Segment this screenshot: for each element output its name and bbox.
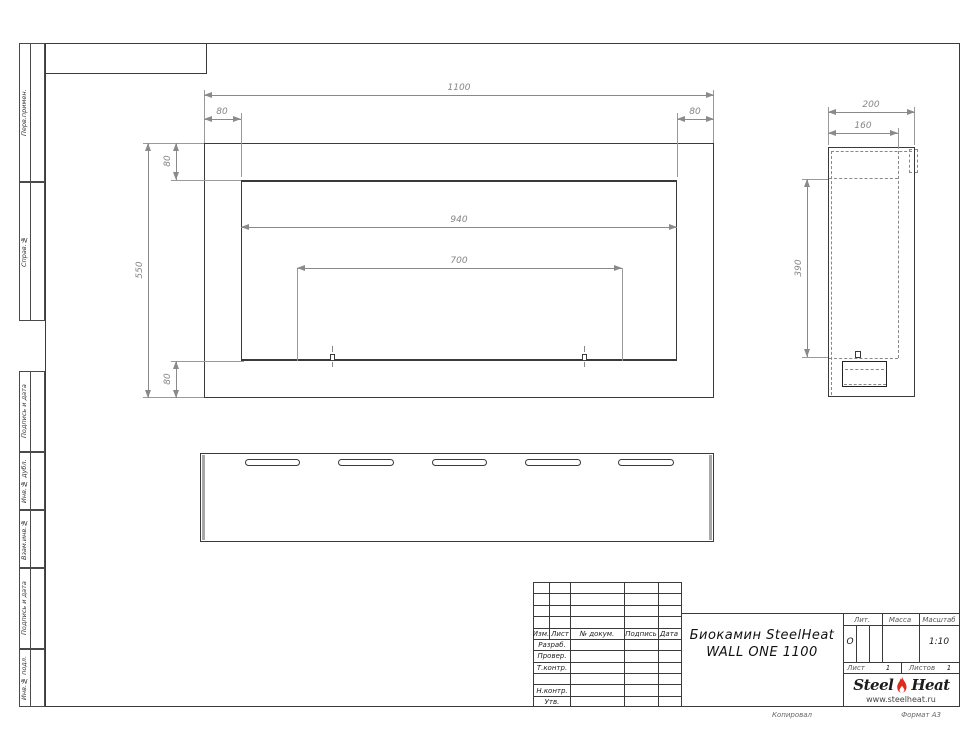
centerline bbox=[332, 346, 333, 352]
extension-line bbox=[802, 357, 828, 358]
mass-label: Масса bbox=[889, 615, 911, 625]
scale-value: 1:10 bbox=[929, 637, 949, 647]
row-prover: Провер. bbox=[537, 651, 566, 661]
grid-line bbox=[919, 613, 920, 662]
divider bbox=[30, 453, 31, 509]
divider bbox=[30, 650, 31, 706]
grid-line bbox=[624, 582, 625, 707]
row-utv: Утв. bbox=[545, 697, 560, 707]
margin-label: Инв.№ дубл. bbox=[20, 453, 30, 509]
dim-border-top: 80 bbox=[163, 155, 173, 166]
centerline bbox=[332, 362, 333, 367]
burner-tab-side bbox=[855, 351, 861, 358]
margin-box-inv-dubl: Инв.№ дубл. bbox=[19, 452, 45, 510]
dim-line bbox=[297, 268, 622, 269]
burner-tab-left bbox=[330, 354, 335, 361]
mount-bracket-hidden bbox=[909, 149, 918, 173]
copied-label: Копировал bbox=[772, 711, 812, 719]
dim-line bbox=[176, 361, 177, 398]
dim-line bbox=[677, 119, 714, 120]
col-dokum: № докум. bbox=[580, 629, 615, 639]
hidden-line bbox=[898, 151, 899, 358]
margin-label: Взам.инв.№ bbox=[20, 511, 30, 567]
dim-line bbox=[807, 179, 808, 357]
row-razrab: Разраб. bbox=[538, 640, 566, 650]
vent-slot bbox=[525, 459, 581, 466]
margin-box-podpis-data-2: Подпись и дата bbox=[19, 568, 45, 649]
sheets-label: Листов bbox=[909, 663, 935, 673]
dim-line bbox=[828, 133, 898, 134]
margin-label: Перв.примен. bbox=[20, 44, 30, 181]
margin-box-podpis-data-1: Подпись и дата bbox=[19, 371, 45, 452]
side-outer-body bbox=[828, 147, 915, 397]
steelheat-logo: Steel Heat bbox=[845, 675, 958, 695]
grid-line bbox=[658, 582, 659, 707]
sheets-value: 1 bbox=[947, 663, 951, 673]
logo-url: www.steelheat.ru bbox=[866, 695, 936, 704]
grid-line bbox=[869, 625, 870, 662]
grid-line bbox=[843, 625, 960, 626]
extension-line bbox=[297, 268, 298, 361]
vent-slot bbox=[432, 459, 487, 466]
divider bbox=[30, 44, 31, 181]
grid-line bbox=[533, 582, 534, 707]
grid-line bbox=[533, 616, 681, 617]
dim-line bbox=[148, 143, 149, 398]
grid-line bbox=[882, 613, 883, 662]
margin-box-inv-podl: Инв.№ подл. bbox=[19, 649, 45, 707]
grid-line bbox=[681, 582, 682, 707]
extension-line bbox=[171, 361, 244, 362]
centerline bbox=[584, 362, 585, 367]
divider bbox=[30, 372, 31, 451]
margin-box-sprav-no: Справ.№ bbox=[19, 182, 45, 321]
logo-heat-text: Heat bbox=[911, 676, 949, 694]
sheet-value: 1 bbox=[886, 663, 890, 673]
format-label: Формат А3 bbox=[901, 711, 941, 719]
divider bbox=[30, 183, 31, 320]
hidden-line bbox=[844, 384, 886, 385]
hidden-line bbox=[829, 178, 898, 179]
extension-line bbox=[898, 128, 899, 149]
grid-line bbox=[533, 684, 681, 685]
dim-overall-width: 1100 bbox=[448, 83, 471, 93]
col-izm: Изм. bbox=[533, 629, 549, 639]
dim-line bbox=[241, 227, 677, 228]
dim-line bbox=[176, 143, 177, 180]
dim-depth: 200 bbox=[862, 100, 879, 110]
panel-edge-right bbox=[709, 455, 712, 540]
lit-label: Лит. bbox=[854, 615, 870, 625]
grid-line bbox=[843, 673, 960, 674]
dim-opening-width: 940 bbox=[450, 215, 467, 225]
dim-line bbox=[204, 119, 241, 120]
divider bbox=[30, 511, 31, 567]
grid-line bbox=[843, 613, 844, 707]
extension-line bbox=[677, 113, 678, 177]
grid-line bbox=[856, 625, 857, 662]
row-nkontr: Н.контр. bbox=[536, 686, 567, 696]
scale-label: Масштаб bbox=[922, 615, 955, 625]
dim-burner-width: 700 bbox=[450, 256, 467, 266]
dim-border-left: 80 bbox=[216, 107, 227, 117]
doc-title-line2: WALL ONE 1100 bbox=[706, 645, 818, 660]
col-data: Дата bbox=[660, 629, 678, 639]
grid-line bbox=[533, 605, 681, 606]
flame-icon bbox=[895, 676, 909, 694]
dim-border-bottom: 80 bbox=[163, 373, 173, 384]
extension-line bbox=[241, 113, 242, 177]
bottom-panel bbox=[200, 453, 714, 542]
hidden-line bbox=[831, 151, 912, 152]
dim-opening-height: 390 bbox=[794, 259, 804, 276]
burner-tab-right bbox=[582, 354, 587, 361]
grid-line bbox=[570, 582, 571, 707]
vent-slot bbox=[245, 459, 300, 466]
front-opening bbox=[241, 180, 677, 361]
grid-line bbox=[533, 582, 681, 583]
vent-slot bbox=[618, 459, 674, 466]
dim-line bbox=[204, 95, 714, 96]
extension-line bbox=[622, 268, 623, 361]
margin-box-vzam-inv: Взам.инв.№ bbox=[19, 510, 45, 568]
row-tkontr: Т.контр. bbox=[537, 663, 567, 673]
lit-value: О bbox=[846, 637, 853, 647]
drawing-sheet: Перв.примен. Справ.№ Подпись и дата Инв.… bbox=[0, 0, 970, 750]
extension-line bbox=[171, 180, 241, 181]
margin-label: Справ.№ bbox=[20, 183, 30, 320]
grid-line bbox=[901, 662, 902, 673]
col-list: Лист bbox=[551, 629, 569, 639]
dim-line bbox=[828, 112, 915, 113]
dim-inner-depth: 160 bbox=[854, 121, 871, 131]
margin-label: Подпись и дата bbox=[20, 372, 30, 451]
margin-label: Подпись и дата bbox=[20, 569, 30, 648]
divider bbox=[30, 569, 31, 648]
designation-box bbox=[45, 43, 207, 74]
panel-edge-left bbox=[202, 455, 205, 540]
logo-steel-text: Steel bbox=[853, 676, 893, 694]
hidden-line bbox=[829, 358, 898, 359]
grid-line bbox=[533, 593, 681, 594]
dim-border-right: 80 bbox=[689, 107, 700, 117]
vent-slot bbox=[338, 459, 394, 466]
grid-line bbox=[533, 673, 681, 674]
col-podpis: Подпись bbox=[625, 629, 657, 639]
margin-label: Инв.№ подл. bbox=[20, 650, 30, 706]
doc-title-line1: Биокамин SteelHeat bbox=[690, 628, 835, 643]
margin-box-perv-primen: Перв.примен. bbox=[19, 43, 45, 182]
hidden-line bbox=[845, 369, 884, 370]
sheet-label: Лист bbox=[847, 663, 865, 673]
dim-overall-height: 550 bbox=[135, 261, 145, 278]
centerline bbox=[584, 346, 585, 352]
